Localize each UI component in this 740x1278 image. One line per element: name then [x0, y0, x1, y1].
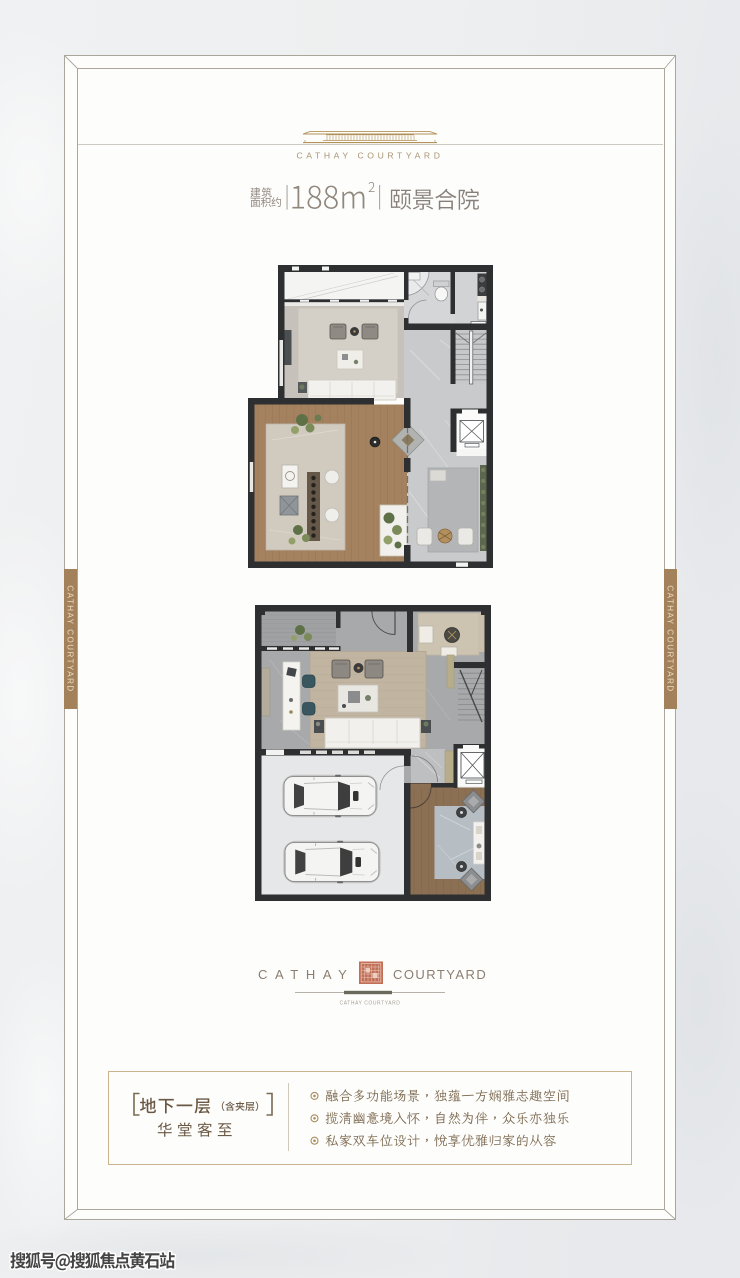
svg-text:COURTYARD: COURTYARD [393, 967, 487, 982]
svg-text:CATHAY: CATHAY [258, 967, 354, 982]
svg-text:CATHAY COURTYARD: CATHAY COURTYARD [666, 585, 675, 692]
svg-text:CATHAY COURTYARD: CATHAY COURTYARD [340, 1001, 401, 1007]
svg-text:CATHAY COURTYARD: CATHAY COURTYARD [66, 585, 75, 692]
svg-text:CATHAY COURTYARD: CATHAY COURTYARD [296, 151, 443, 161]
